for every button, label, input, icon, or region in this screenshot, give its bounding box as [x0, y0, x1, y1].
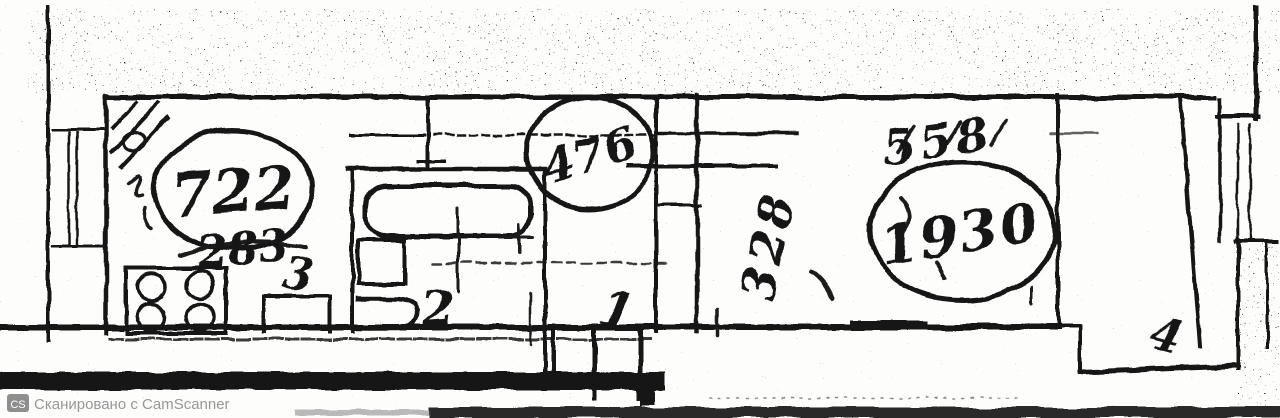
bottom-dark-band	[428, 407, 1280, 418]
room-number-kitchen: 3	[280, 247, 317, 301]
camscanner-watermark: CS Сканировано с CamScanner	[7, 394, 230, 413]
scanned-floorplan-page: 722 283 3 476 2 1 328 558 1930 4 CS Скан…	[0, 0, 1280, 418]
measurement-722: 722	[168, 153, 298, 232]
measurement-283: 283	[194, 220, 291, 279]
bottom-scan-band	[295, 407, 1280, 418]
bottom-dark-band-fade	[295, 410, 430, 416]
room-number-bathroom: 2	[418, 280, 456, 338]
camscanner-watermark-text: Сканировано с CamScanner	[34, 396, 230, 413]
floorplan-scan-svg: 722 283 3 476 2 1 328 558 1930 4 CS Скан…	[0, 0, 1280, 418]
camscanner-logo-text: CS	[10, 399, 25, 411]
